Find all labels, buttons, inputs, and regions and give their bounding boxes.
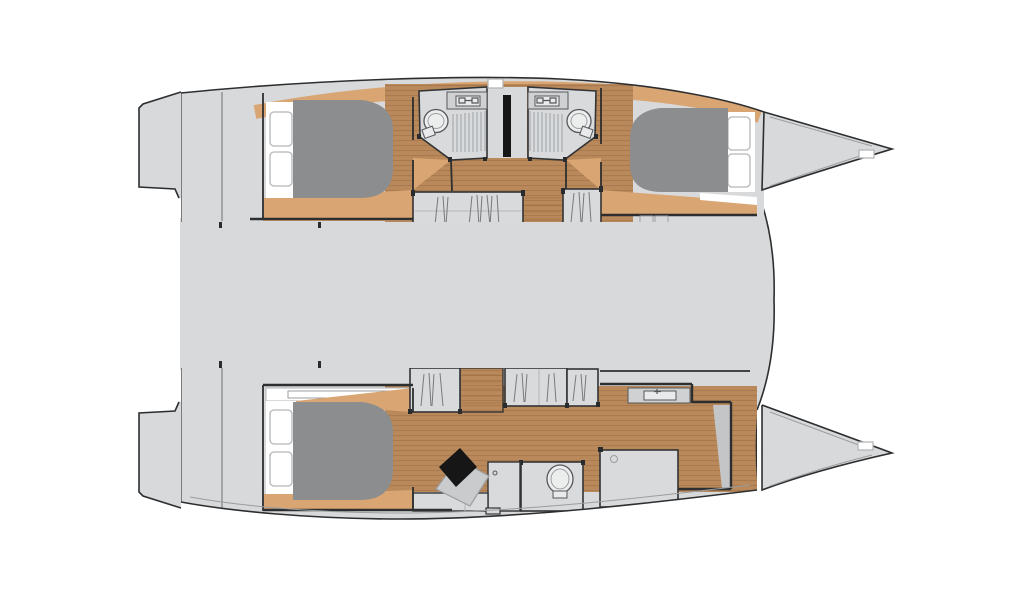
deck-hatch — [270, 410, 292, 444]
wall-post — [408, 409, 412, 414]
cabinet — [488, 462, 520, 511]
floorplan-canvas — [0, 0, 1024, 600]
wall-tick — [219, 361, 222, 368]
deck-hatch — [270, 152, 292, 186]
bow-cleat — [859, 150, 874, 158]
stern-platform-starboard — [139, 401, 181, 508]
double-berth-forward — [630, 108, 728, 192]
wall-post — [581, 460, 585, 465]
hull-starboard — [181, 368, 892, 519]
bow-bulkhead — [757, 404, 760, 492]
double-berth-owner — [293, 402, 393, 500]
wall-post — [503, 403, 507, 408]
wall-post — [483, 157, 487, 161]
bridgedeck-platform — [180, 218, 758, 370]
wall-post — [417, 134, 421, 139]
deck-hatch — [728, 154, 750, 187]
deck-hatch — [728, 117, 750, 150]
toilet-room — [519, 460, 585, 511]
wall-post — [561, 188, 565, 194]
bow-port — [762, 112, 892, 190]
vanity-forward — [628, 388, 690, 403]
toilet-cistern — [553, 491, 567, 498]
bow-cleat — [858, 442, 873, 450]
wall-post — [458, 409, 462, 414]
hull-starboard-interior — [181, 368, 759, 514]
deck-hatch — [270, 112, 292, 146]
door-stub — [486, 508, 500, 514]
center-deck-hatch — [488, 79, 503, 88]
wall-post — [528, 157, 532, 161]
deck-hatch — [270, 452, 292, 486]
wall-post — [565, 403, 569, 408]
stern-platform-port — [139, 92, 181, 199]
wall-tick — [318, 221, 321, 228]
wall-post — [596, 402, 600, 407]
bow-starboard — [762, 405, 892, 490]
wall-post — [521, 190, 525, 196]
wall-tick — [219, 221, 222, 228]
hull-port — [181, 78, 892, 232]
bridgedeck-front-fill — [757, 190, 774, 410]
wardrobe-unit — [410, 368, 460, 412]
shower-room-box — [600, 450, 678, 507]
wall-post — [594, 134, 598, 139]
catamaran-floorplan-drawing — [0, 0, 1024, 600]
heads-divider-wall — [503, 95, 511, 157]
wall-post — [598, 447, 603, 452]
double-berth-aft — [293, 100, 393, 198]
sink-basin — [644, 391, 676, 400]
wall-tick — [318, 361, 321, 368]
